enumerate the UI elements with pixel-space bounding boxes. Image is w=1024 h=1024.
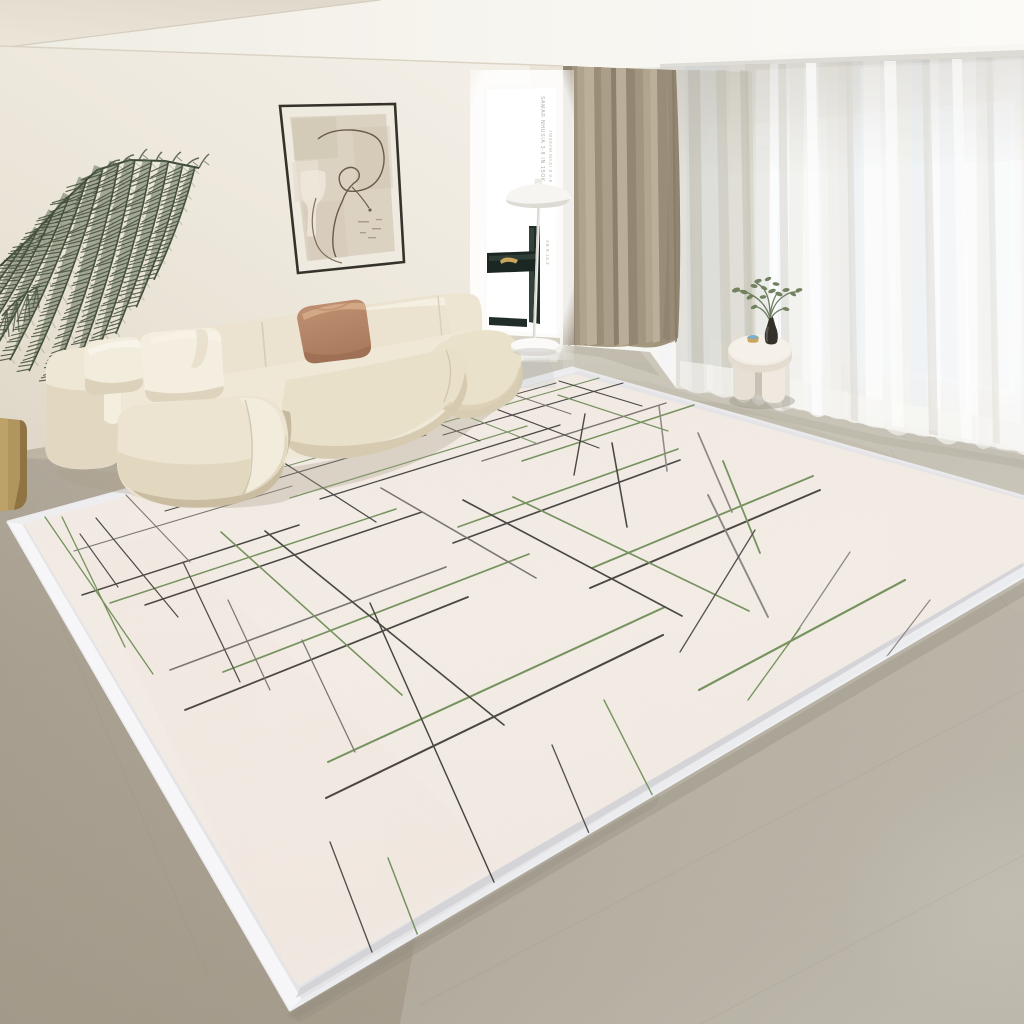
svg-text:JW3SAM MASI 8 3-8: JW3SAM MASI 8 3-8 [548, 130, 553, 183]
svg-text:AB 8.13.3: AB 8.13.3 [545, 240, 550, 265]
